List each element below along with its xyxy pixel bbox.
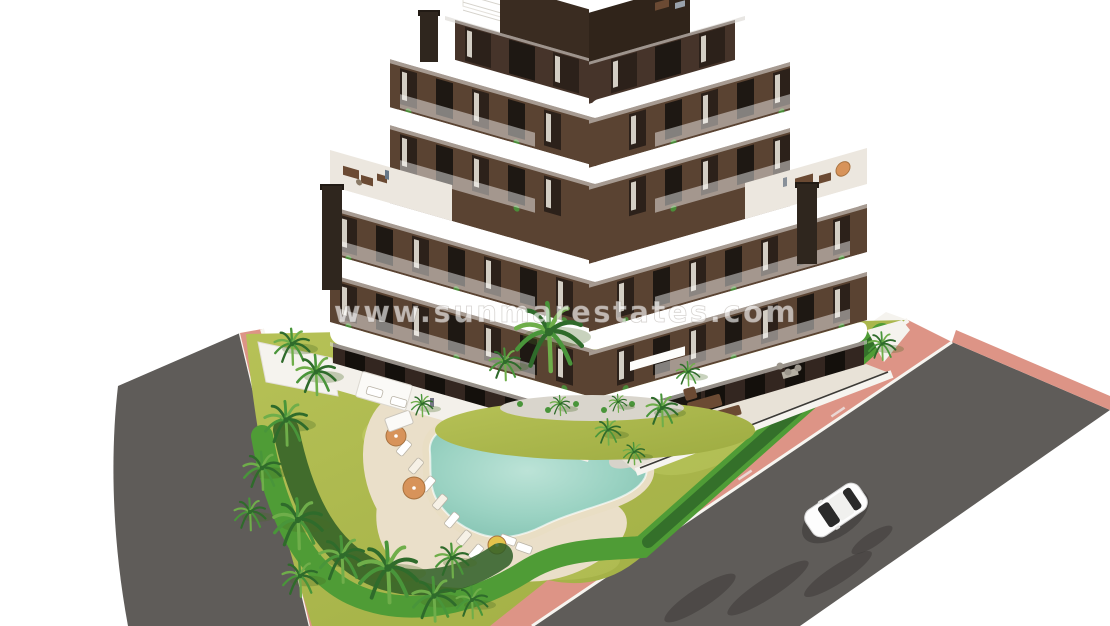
render-scene: www.sunmarestates.com bbox=[0, 0, 1110, 626]
property-render: www.sunmarestates.com bbox=[0, 0, 1110, 626]
chimney bbox=[322, 186, 342, 290]
chimney bbox=[420, 12, 438, 62]
agency-watermark: www.sunmarestates.com bbox=[334, 295, 798, 329]
chimney bbox=[797, 184, 817, 264]
